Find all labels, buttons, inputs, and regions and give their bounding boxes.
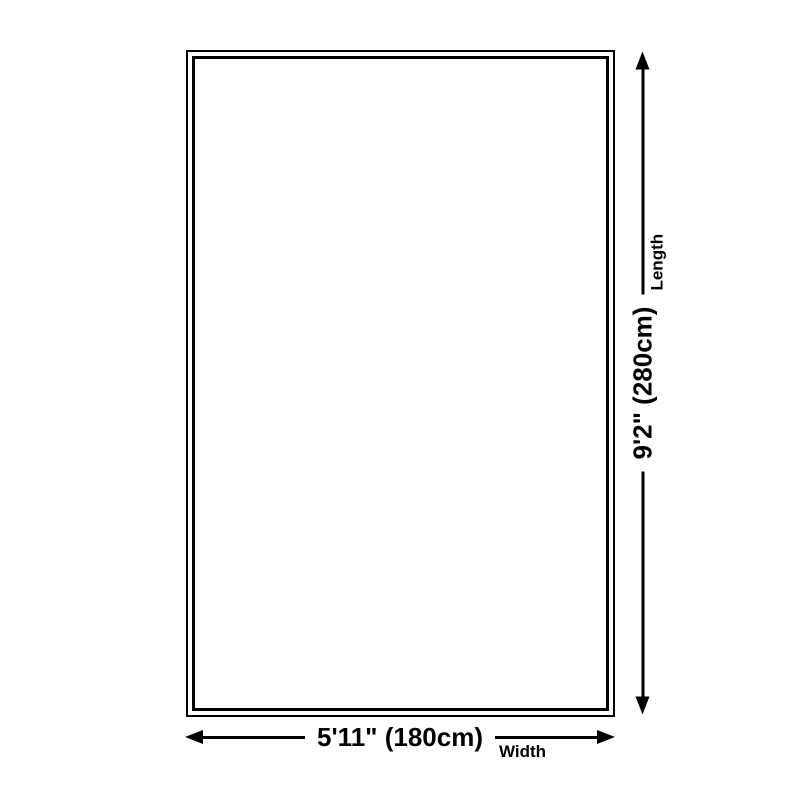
width-value: 5'11" (180cm) <box>305 724 495 750</box>
rug-outline <box>186 50 615 717</box>
width-dimension-arrow: 5'11" (180cm) Width <box>185 715 615 759</box>
dimension-line <box>641 471 644 696</box>
dimension-line <box>203 736 305 739</box>
length-value: 9'2" (280cm) <box>630 295 656 472</box>
length-dimension-arrow: 9'2" (280cm) Length <box>621 52 665 715</box>
arrow-down-icon <box>636 697 650 715</box>
size-diagram: 5'11" (180cm) Width 9'2" (280cm) Length <box>0 0 800 800</box>
width-axis-label: Width <box>499 743 546 760</box>
arrow-left-icon <box>185 730 203 744</box>
arrow-right-icon <box>597 730 615 744</box>
arrow-up-icon <box>636 52 650 70</box>
rug-inner-border <box>192 56 609 711</box>
dimension-line: Length <box>641 70 644 295</box>
dimension-line: Width <box>495 736 597 739</box>
length-axis-label: Length <box>648 234 665 291</box>
